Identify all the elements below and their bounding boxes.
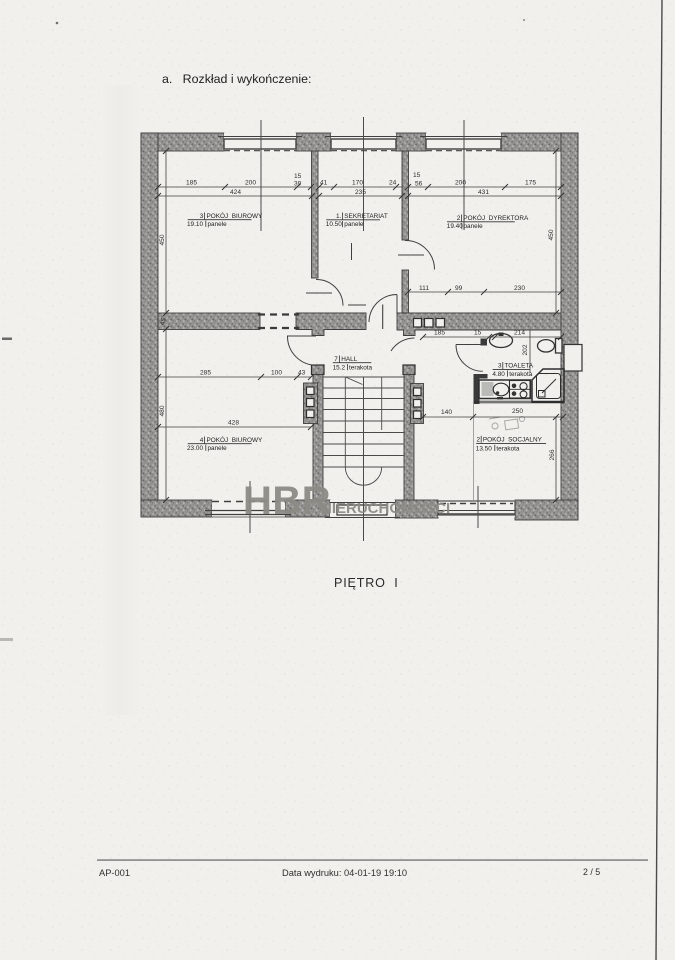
svg-text:41: 41	[320, 180, 328, 187]
svg-text:PIĘTRO I: PIĘTRO I	[334, 576, 399, 590]
svg-text:Data wydruku: 04-01-19 19:10: Data wydruku: 04-01-19 19:10	[282, 868, 407, 878]
svg-text:15: 15	[294, 173, 302, 180]
svg-text:2: 2	[457, 215, 461, 222]
svg-text:43: 43	[298, 370, 306, 377]
svg-text:4: 4	[200, 437, 204, 444]
svg-text:NIERUCHOMOŚCI: NIERUCHOMOŚCI	[321, 499, 450, 517]
svg-text:a. Rozkład i wykończenie:: a. Rozkład i wykończenie:	[162, 72, 311, 86]
svg-text:3: 3	[498, 363, 502, 370]
svg-text:266: 266	[549, 449, 556, 460]
svg-text:3: 3	[200, 213, 204, 220]
svg-text:230: 230	[514, 285, 525, 292]
svg-text:TOALETA: TOALETA	[505, 363, 534, 370]
svg-text:200: 200	[455, 180, 466, 187]
svg-text:140: 140	[441, 409, 452, 416]
svg-text:19.10: 19.10	[187, 221, 203, 228]
svg-text:4.80: 4.80	[492, 371, 505, 378]
svg-text:428: 428	[228, 420, 239, 427]
svg-text:450: 450	[548, 229, 555, 240]
svg-text:HALL: HALL	[341, 356, 357, 363]
svg-text:15.2: 15.2	[333, 364, 346, 371]
svg-text:panele: panele	[208, 221, 228, 228]
svg-text:185: 185	[434, 330, 445, 337]
svg-text:panele: panele	[344, 221, 364, 228]
svg-text:202: 202	[522, 344, 529, 355]
svg-text:terakota: terakota	[349, 364, 373, 371]
svg-text:15: 15	[474, 330, 482, 337]
svg-text:285: 285	[200, 370, 211, 377]
svg-text:235: 235	[355, 189, 366, 196]
svg-text:POKÓJ DYREKTORA: POKÓJ DYREKTORA	[463, 213, 529, 222]
svg-text:24: 24	[389, 180, 397, 187]
svg-text:431: 431	[478, 189, 489, 196]
svg-text:terakota: terakota	[509, 371, 533, 378]
svg-text:POKÓJ BIUROWY: POKÓJ BIUROWY	[207, 435, 263, 444]
svg-text:HBR: HBR	[243, 479, 331, 523]
svg-text:SEKRETARIAT: SEKRETARIAT	[344, 213, 388, 220]
svg-text:terakota: terakota	[496, 446, 520, 453]
svg-text:AP-001: AP-001	[99, 868, 130, 878]
svg-text:99: 99	[455, 285, 463, 292]
svg-text:panele: panele	[208, 445, 228, 452]
svg-text:200: 200	[245, 180, 256, 187]
svg-text:panele: panele	[464, 223, 484, 230]
svg-text:2: 2	[476, 436, 480, 443]
svg-text:15: 15	[413, 172, 421, 179]
svg-text:111: 111	[419, 285, 429, 292]
svg-text:POKÓJ BIUROWY: POKÓJ BIUROWY	[207, 211, 263, 220]
svg-text:19.40: 19.40	[447, 223, 463, 230]
svg-text:7: 7	[334, 356, 338, 363]
svg-text:185: 185	[186, 180, 197, 187]
svg-text:450: 450	[159, 234, 166, 245]
svg-text:2 / 5: 2 / 5	[583, 867, 600, 877]
svg-text:39: 39	[294, 181, 302, 188]
svg-text:1.: 1.	[336, 213, 342, 220]
svg-text:214: 214	[514, 330, 525, 337]
svg-text:56: 56	[415, 181, 423, 188]
svg-text:100: 100	[271, 370, 282, 377]
svg-text:250: 250	[512, 408, 523, 415]
svg-text:170: 170	[352, 180, 363, 187]
svg-text:13.50: 13.50	[476, 446, 492, 453]
svg-text:10.50: 10.50	[326, 221, 342, 228]
svg-text:480: 480	[159, 405, 166, 416]
svg-text:POKÓJ SOCJALNY: POKÓJ SOCJALNY	[483, 434, 543, 443]
svg-text:175: 175	[525, 180, 536, 187]
svg-text:23.00: 23.00	[187, 445, 203, 452]
svg-text:424: 424	[230, 189, 241, 196]
